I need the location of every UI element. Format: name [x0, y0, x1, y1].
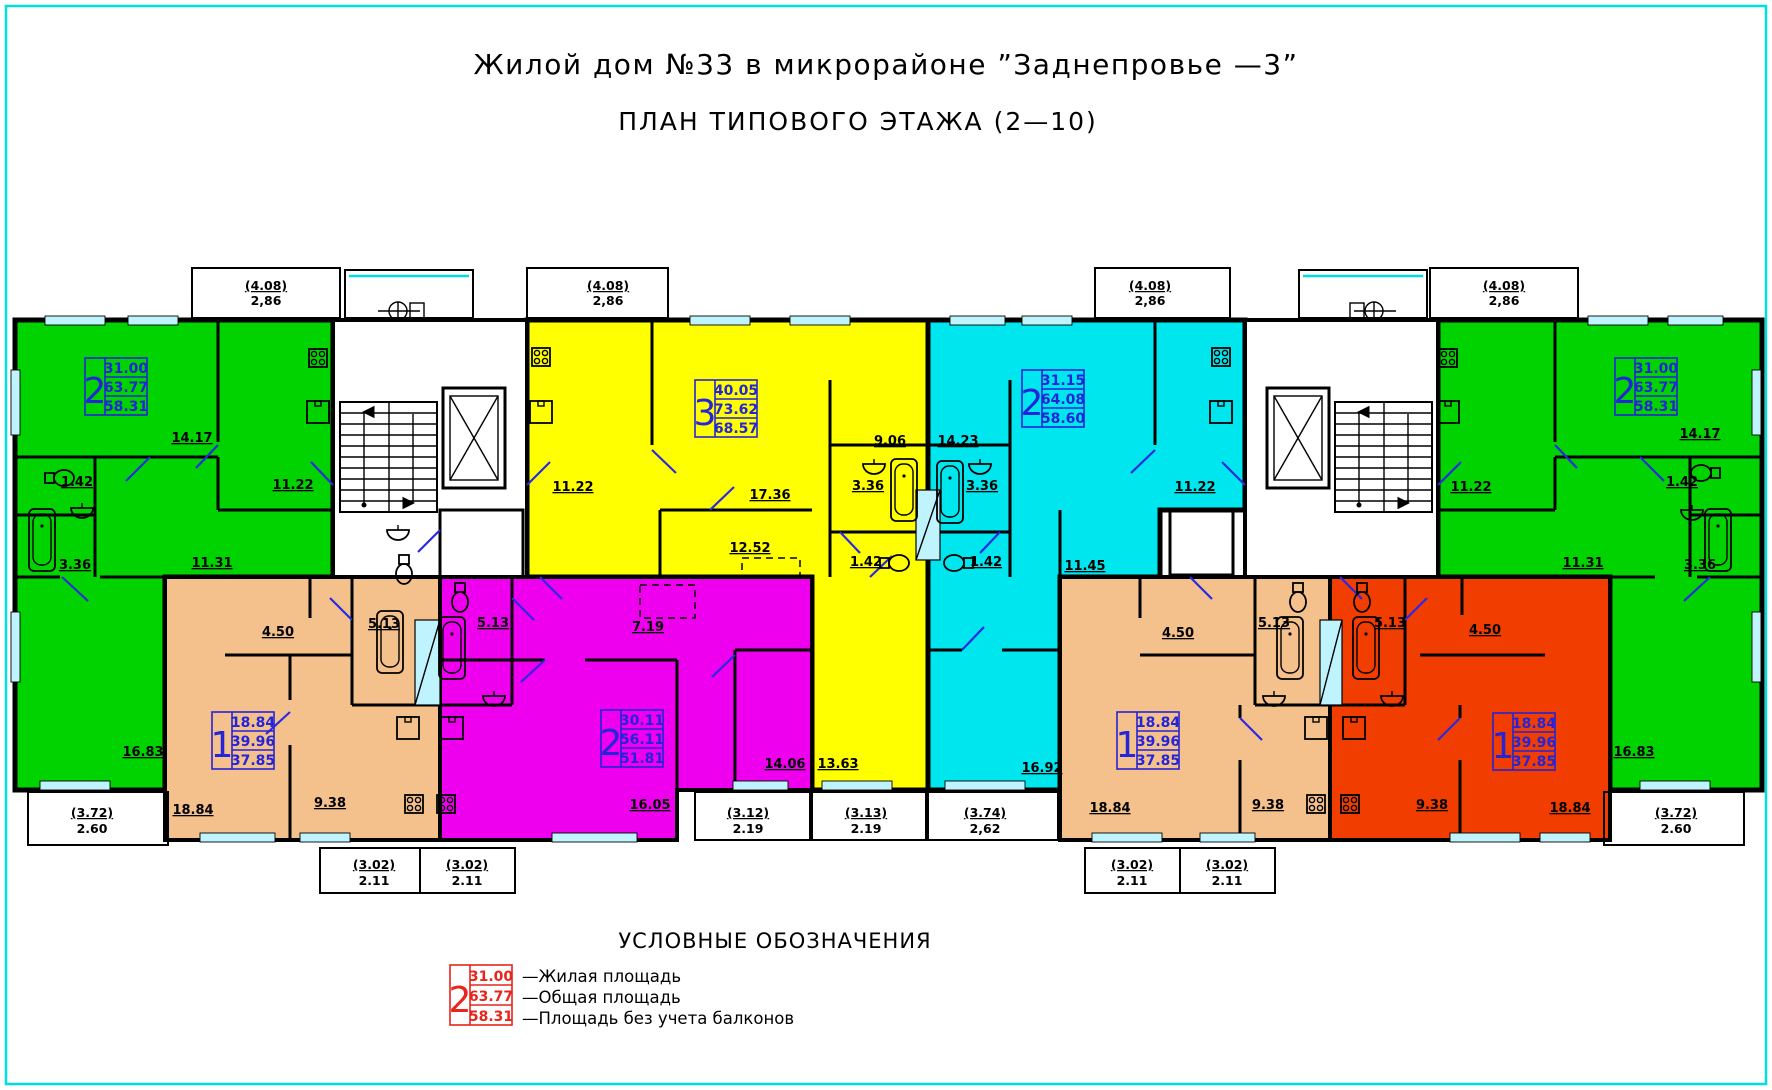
balcony-size: 2.11 — [1212, 873, 1243, 888]
dim-label: 1.42 — [970, 555, 1002, 570]
total-area: 56.11 — [620, 732, 664, 748]
dim-label: 16.83 — [122, 745, 163, 760]
area-without-balconies: 68.57 — [714, 421, 758, 437]
living-area: 31.00 — [104, 361, 149, 377]
dim-label: 14.17 — [171, 431, 212, 446]
total-area: 39.96 — [1512, 735, 1556, 751]
balcony-size: 2,86 — [1489, 293, 1520, 308]
dim-label: 13.63 — [817, 757, 858, 772]
balcony-area: (3.13) — [845, 805, 887, 820]
balcony-area: (3.74) — [964, 805, 1006, 820]
balcony-size: 2.60 — [77, 821, 108, 836]
dim-label: 11.31 — [1562, 556, 1603, 571]
legend: УСЛОВНЫЕ ОБОЗНАЧЕНИЯ 2 31.00 63.77 58.31… — [449, 929, 932, 1028]
balcony-size: 2,86 — [1135, 293, 1166, 308]
dim-label: 11.22 — [1450, 480, 1491, 495]
balcony-area: (3.02) — [1111, 857, 1153, 872]
balcony-size: 2,62 — [970, 821, 1001, 836]
dim-label: 4.50 — [1469, 623, 1501, 638]
living-area: 31.15 — [1041, 373, 1085, 389]
total-area: 63.77 — [104, 380, 148, 396]
legend-without-area: 58.31 — [469, 1009, 513, 1025]
area-without-balconies: 58.31 — [104, 399, 148, 415]
total-area: 73.62 — [714, 402, 758, 418]
dim-label: 11.22 — [1174, 480, 1215, 495]
dim-label: 3.36 — [966, 479, 998, 494]
dim-label: 3.36 — [1684, 558, 1716, 573]
drawing-subtitle: ПЛАН ТИПОВОГО ЭТАЖА (2—10) — [618, 107, 1098, 136]
legend-sample-box: 2 31.00 63.77 58.31 — [449, 965, 514, 1025]
living-area: 18.84 — [231, 715, 276, 731]
dim-label: 11.22 — [552, 480, 593, 495]
balcony-size: 2.11 — [1117, 873, 1148, 888]
balcony-size: 2,86 — [593, 293, 624, 308]
dim-label: 14.23 — [937, 434, 978, 449]
living-area: 18.84 — [1136, 715, 1181, 731]
balcony-size: 2,86 — [251, 293, 282, 308]
dim-label: 9.38 — [1252, 798, 1284, 813]
area-without-balconies: 58.31 — [1634, 399, 1678, 415]
dim-label: 9.38 — [1416, 798, 1448, 813]
dim-label: 4.50 — [1162, 626, 1194, 641]
dim-label: 18.84 — [1089, 801, 1130, 816]
dim-label: 16.92 — [1021, 761, 1062, 776]
shaft-icon — [415, 620, 440, 705]
dim-label: 17.36 — [749, 488, 790, 503]
dim-label: 16.83 — [1613, 745, 1654, 760]
dim-label: 11.22 — [272, 478, 313, 493]
dim-label: 5.13 — [477, 616, 509, 631]
dim-label: 14.17 — [1679, 427, 1720, 442]
dim-label: 16.05 — [629, 798, 670, 813]
dim-label: 5.13 — [1374, 616, 1406, 631]
dim-label: 3.36 — [852, 479, 884, 494]
dim-label: 14.06 — [764, 757, 805, 772]
total-area: 39.96 — [1136, 734, 1180, 750]
dim-label: 5.13 — [1258, 616, 1290, 631]
total-area: 63.77 — [1634, 380, 1678, 396]
balcony-area: (4.08) — [1129, 278, 1171, 293]
balcony-area: (3.72) — [71, 805, 113, 820]
area-without-balconies: 37.85 — [231, 753, 275, 769]
living-area: 30.11 — [620, 713, 664, 729]
legend-living-area: 31.00 — [469, 969, 514, 985]
balcony-area: (4.08) — [587, 278, 629, 293]
floor-plan-page: Жилой дом №33 в микрорайоне ”Заднепровье… — [0, 0, 1772, 1090]
stair-core-left — [333, 270, 527, 577]
balcony-area: (3.02) — [353, 857, 395, 872]
balcony-area: (3.02) — [1206, 857, 1248, 872]
dim-label: 1.42 — [1666, 475, 1698, 490]
entrance-vestibule-right — [1170, 510, 1233, 575]
balcony-size: 2.11 — [452, 873, 483, 888]
legend-heading: УСЛОВНЫЕ ОБОЗНАЧЕНИЯ — [618, 929, 931, 953]
dim-label: 18.84 — [172, 803, 213, 818]
balcony-area: (3.12) — [727, 805, 769, 820]
drawing-title: Жилой дом №33 в микрорайоне ”Заднепровье… — [473, 48, 1298, 81]
dim-label: 9.06 — [874, 434, 906, 449]
balcony-area: (3.72) — [1655, 805, 1697, 820]
legend-without-label: —Площадь без учета балконов — [522, 1009, 794, 1028]
balcony-size: 2.19 — [733, 821, 764, 836]
dim-label: 4.50 — [262, 625, 294, 640]
area-without-balconies: 58.60 — [1041, 411, 1086, 427]
floor-plan-drawing: Жилой дом №33 в микрорайоне ”Заднепровье… — [0, 0, 1772, 1090]
dim-label: 7.19 — [632, 620, 664, 635]
dim-label: 3.36 — [59, 558, 91, 573]
balcony-size: 2.19 — [851, 821, 882, 836]
balcony-size: 2.11 — [359, 873, 390, 888]
dim-label: 1.42 — [61, 475, 93, 490]
dim-label: 11.31 — [191, 556, 232, 571]
balcony-size: 2.60 — [1661, 821, 1692, 836]
shaft-icon — [1320, 620, 1342, 705]
legend-total-label: —Общая площадь — [522, 988, 681, 1007]
balcony-area: (4.08) — [1483, 278, 1525, 293]
living-area: 40.05 — [714, 383, 758, 399]
dim-label: 5.13 — [368, 617, 400, 632]
total-area: 39.96 — [231, 734, 275, 750]
area-without-balconies: 51.81 — [620, 751, 664, 767]
living-area: 18.84 — [1512, 716, 1557, 732]
area-without-balconies: 37.85 — [1512, 754, 1556, 770]
balcony-area: (4.08) — [245, 278, 287, 293]
dim-label: 12.52 — [729, 541, 770, 556]
legend-total-area: 63.77 — [469, 989, 513, 1005]
dim-label: 9.38 — [314, 796, 346, 811]
dim-label: 11.45 — [1064, 559, 1105, 574]
balcony-area: (3.02) — [446, 857, 488, 872]
total-area: 64.08 — [1041, 392, 1085, 408]
area-without-balconies: 37.85 — [1136, 753, 1180, 769]
living-area: 31.00 — [1634, 361, 1679, 377]
legend-living-label: —Жилая площадь — [522, 967, 681, 986]
dim-label: 18.84 — [1549, 801, 1590, 816]
dim-label: 1.42 — [850, 555, 882, 570]
